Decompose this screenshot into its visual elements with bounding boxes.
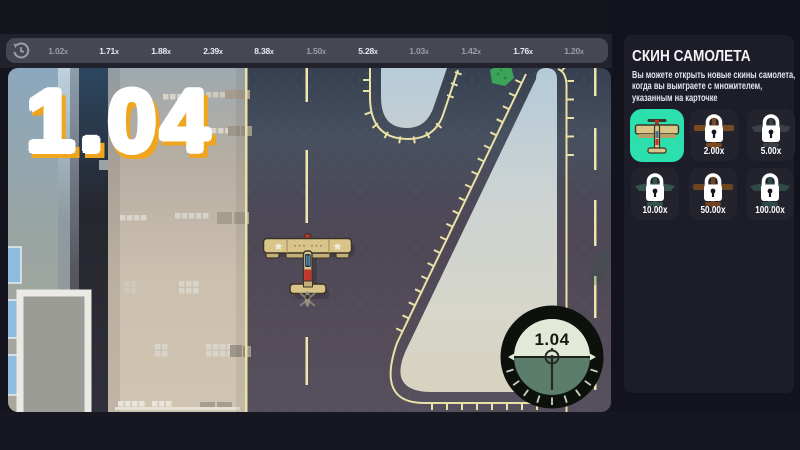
svg-text:1.04: 1.04 bbox=[534, 330, 569, 349]
